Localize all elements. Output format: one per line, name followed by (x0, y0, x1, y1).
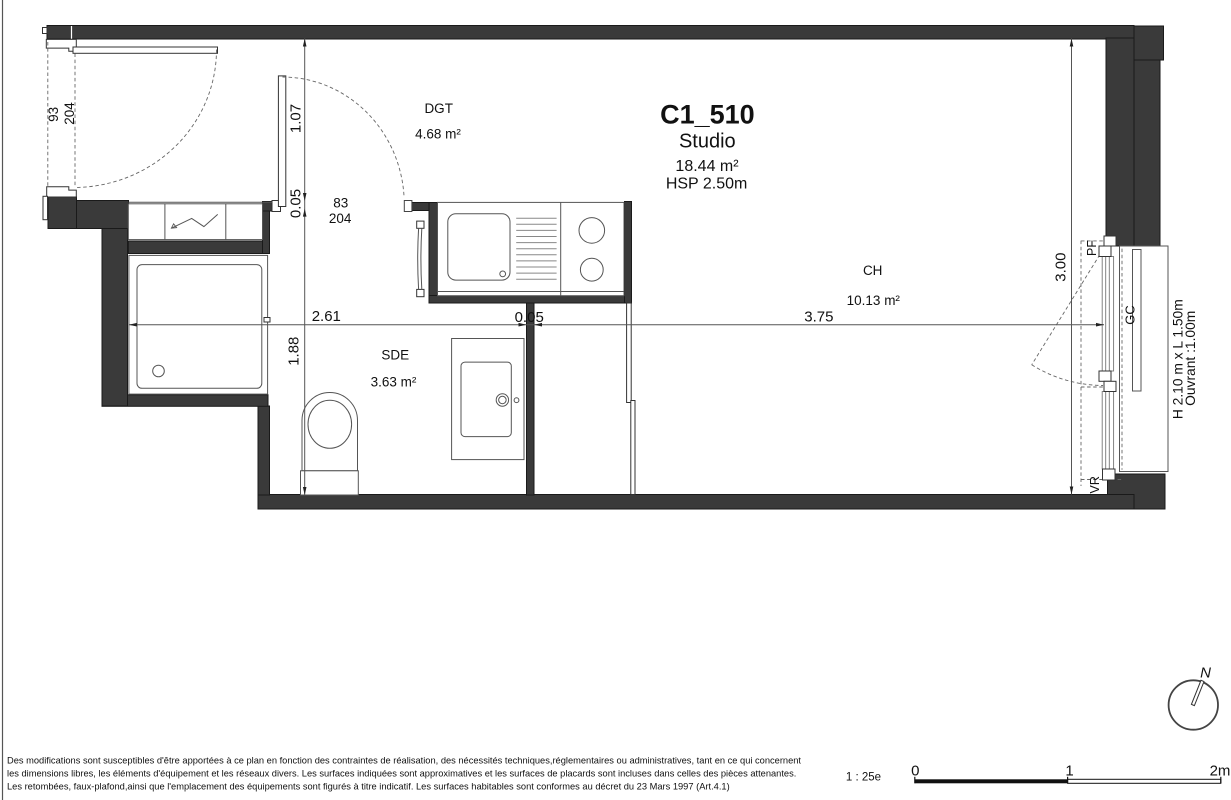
svg-text:2m: 2m (1210, 763, 1231, 780)
svg-text:Ouvrant :1.00m: Ouvrant :1.00m (1183, 311, 1198, 406)
svg-text:0.05: 0.05 (515, 309, 544, 326)
svg-text:VR: VR (1088, 476, 1102, 493)
svg-text:3.75: 3.75 (804, 309, 833, 326)
svg-text:4.68 m²: 4.68 m² (415, 127, 461, 142)
svg-text:1: 1 (1065, 763, 1073, 780)
svg-text:3.63 m²: 3.63 m² (371, 375, 417, 390)
svg-text:GC: GC (1123, 305, 1138, 325)
svg-text:0: 0 (911, 763, 919, 780)
svg-text:Des modifications sont suscept: Des modifications sont susceptibles d'êt… (7, 755, 801, 765)
svg-text:93: 93 (46, 107, 61, 122)
svg-text:les dimensions libres, les élé: les dimensions libres, les éléments d'éq… (7, 769, 796, 779)
svg-text:N: N (1200, 665, 1211, 682)
svg-text:3.00: 3.00 (1052, 252, 1069, 281)
svg-text:PF: PF (1085, 240, 1099, 256)
svg-text:CH: CH (863, 263, 883, 278)
svg-text:Les retombées, faux-plafond,ai: Les retombées, faux-plafond,ainsi que l'… (7, 782, 730, 792)
svg-text:83: 83 (333, 196, 348, 211)
svg-text:HSP 2.50m: HSP 2.50m (666, 176, 748, 193)
svg-text:10.13 m²: 10.13 m² (847, 293, 901, 308)
svg-text:SDE: SDE (381, 347, 409, 362)
svg-text:0.05: 0.05 (288, 189, 305, 218)
svg-text:204: 204 (329, 211, 352, 226)
svg-text:18.44 m²: 18.44 m² (675, 158, 739, 175)
svg-text:DGT: DGT (424, 101, 453, 116)
svg-text:2.61: 2.61 (312, 308, 341, 325)
svg-text:1.88: 1.88 (286, 337, 303, 366)
svg-text:1 : 25e: 1 : 25e (846, 771, 881, 783)
svg-text:1.07: 1.07 (288, 104, 305, 133)
svg-text:Studio: Studio (679, 131, 736, 153)
svg-text:204: 204 (62, 102, 77, 125)
svg-text:C1_510: C1_510 (660, 100, 755, 130)
